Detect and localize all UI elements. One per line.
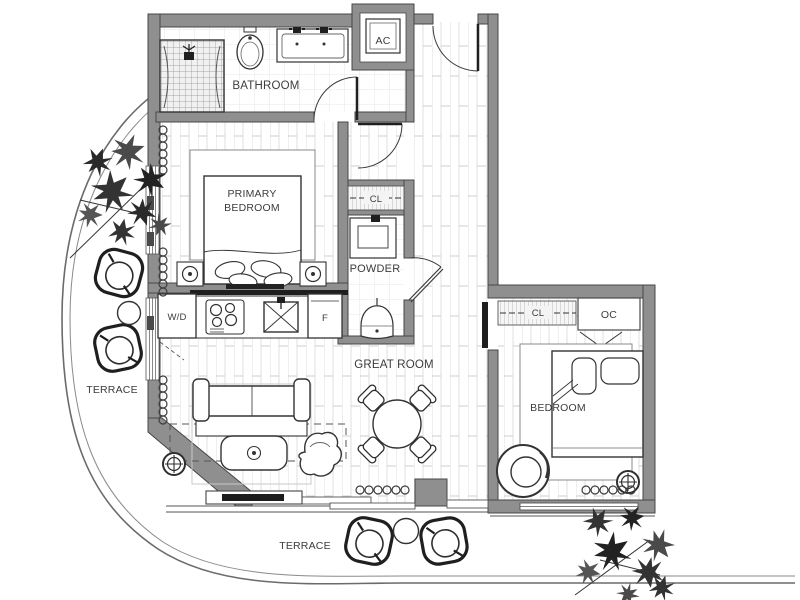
cooktop — [206, 300, 244, 334]
powder-sink — [350, 215, 396, 258]
plant-bottom-right — [574, 503, 680, 600]
bathroom-floor-2 — [352, 70, 406, 112]
primary-bedroom-label-1: PRIMARY — [227, 188, 276, 200]
sofa — [193, 379, 310, 436]
shower — [160, 40, 224, 112]
floor-lamp — [617, 471, 639, 493]
closet-primary-label: CL — [370, 194, 383, 205]
bedroom-window — [520, 503, 638, 510]
bathroom-label: BATHROOM — [232, 80, 299, 92]
lounge-chair — [92, 246, 146, 300]
egg-chair — [497, 445, 549, 497]
ac-label: AC — [376, 35, 391, 47]
window-strip — [447, 500, 488, 508]
dining-table — [373, 400, 421, 448]
oc-label: OC — [601, 309, 617, 321]
side-table — [118, 302, 141, 325]
floor-lamp — [163, 453, 185, 475]
lounge-chair — [92, 322, 144, 374]
floor-plan-drawing: BATHROOM AC PRIMARY BEDROOM CL POWDER W/… — [0, 0, 800, 600]
terrace-bottom-furniture — [343, 515, 470, 567]
fridge-label: F — [322, 313, 328, 324]
floor-plan-page: BATHROOM AC PRIMARY BEDROOM CL POWDER W/… — [0, 0, 800, 600]
primary-bedroom-label-2: BEDROOM — [224, 202, 280, 214]
lounge-chair — [419, 516, 470, 567]
powder-label: POWDER — [350, 263, 401, 275]
great-room-label: GREAT ROOM — [354, 359, 434, 371]
left-wall-window-2 — [146, 298, 159, 380]
closet-bedroom-label: CL — [532, 308, 545, 319]
tv-console — [206, 491, 302, 504]
terrace-left-label: TERRACE — [86, 384, 138, 396]
wall-stub — [415, 479, 447, 506]
kitchen-sink — [264, 297, 298, 332]
nightstand-right — [300, 262, 326, 286]
bedroom-door — [482, 302, 488, 348]
terrace-bottom-label: TERRACE — [279, 540, 331, 552]
headboard — [226, 284, 284, 289]
washer-dryer-label: W/D — [167, 312, 186, 323]
side-table — [394, 519, 419, 544]
shower-head — [184, 52, 194, 60]
bedroom-label: BEDROOM — [530, 402, 586, 414]
nightstand-left — [177, 262, 203, 286]
vanity-double-sink — [277, 27, 348, 62]
lounge-chair — [343, 515, 395, 567]
hall-floor — [348, 122, 404, 180]
terrace-left-furniture — [92, 246, 146, 374]
coffee-table — [221, 436, 287, 470]
